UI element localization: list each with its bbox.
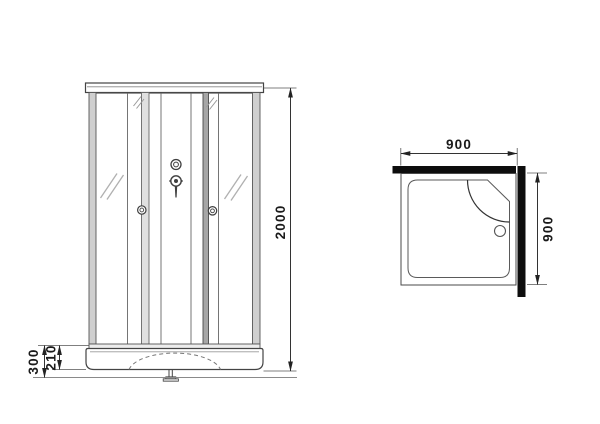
- wall-band-right: [518, 166, 526, 297]
- wall-band-top: [393, 166, 517, 174]
- technical-drawing: 2000 300 210 900 900: [0, 0, 600, 424]
- dim-depth-label: 900: [541, 216, 556, 242]
- drain-foot: [163, 370, 178, 382]
- door-handle-left-icon: [138, 206, 146, 214]
- technical-drawing-canvas: 2000 300 210 900 900: [0, 0, 600, 424]
- dim-height-label: 2000: [273, 205, 288, 240]
- dim-width-label: 900: [446, 137, 472, 152]
- dim-base-total-label: 300: [26, 348, 41, 374]
- bottom-rail: [89, 344, 260, 349]
- drain-icon: [495, 226, 506, 237]
- glass-reflection-left: [101, 174, 124, 200]
- frame-post-left: [89, 93, 96, 345]
- door-handle-right-icon: [208, 207, 216, 215]
- door-stile-left: [142, 93, 150, 345]
- door-stile-right: [203, 93, 209, 345]
- dim-base-inner-label: 210: [44, 344, 59, 370]
- glass-reflection-right: [225, 175, 248, 201]
- tray-outline: [408, 180, 510, 278]
- frame-post-right: [253, 93, 261, 345]
- top-view: 900 900: [393, 137, 556, 297]
- mixer-icon: [169, 160, 182, 198]
- cabin-top-cap: [86, 83, 264, 93]
- front-view: [33, 83, 297, 381]
